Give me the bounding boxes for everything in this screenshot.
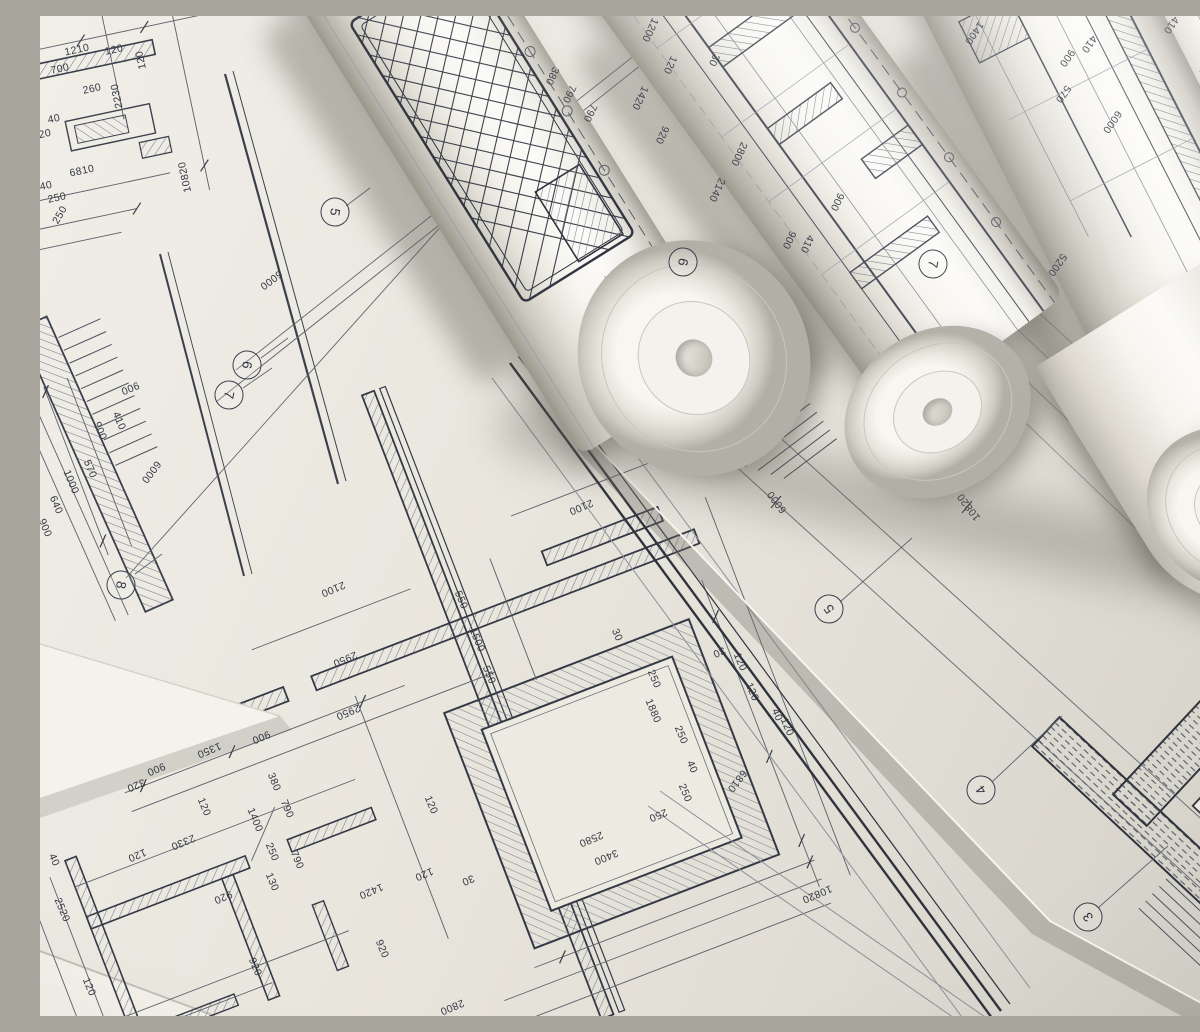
blueprint-photo: Photograph of several rolled architectur… <box>40 16 1200 1016</box>
